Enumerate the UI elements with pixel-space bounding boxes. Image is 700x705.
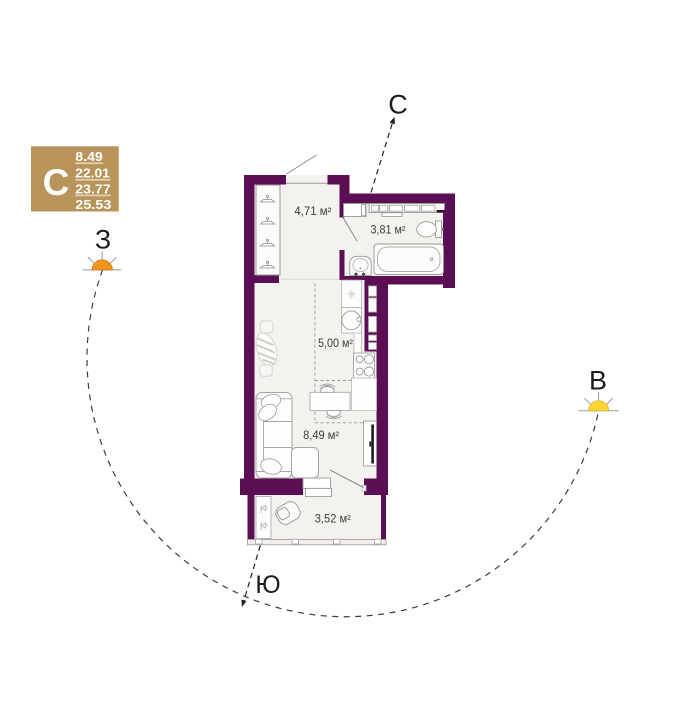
svg-text:С: С <box>388 90 408 120</box>
svg-text:В: В <box>589 366 607 396</box>
svg-text:23.77: 23.77 <box>75 181 110 196</box>
svg-text:3,52 м²: 3,52 м² <box>315 514 351 526</box>
svg-text:С: С <box>43 162 70 203</box>
svg-text:8.49: 8.49 <box>75 149 103 164</box>
svg-text:Ю: Ю <box>255 571 280 599</box>
svg-text:З: З <box>95 225 111 255</box>
svg-text:4,71 м²: 4,71 м² <box>294 206 331 218</box>
svg-text:8,49 м²: 8,49 м² <box>303 430 339 442</box>
svg-text:25.53: 25.53 <box>75 197 111 212</box>
svg-text:5,00 м²: 5,00 м² <box>318 338 353 350</box>
svg-text:3,81 м²: 3,81 м² <box>371 224 406 236</box>
svg-text:22.01: 22.01 <box>75 166 110 181</box>
